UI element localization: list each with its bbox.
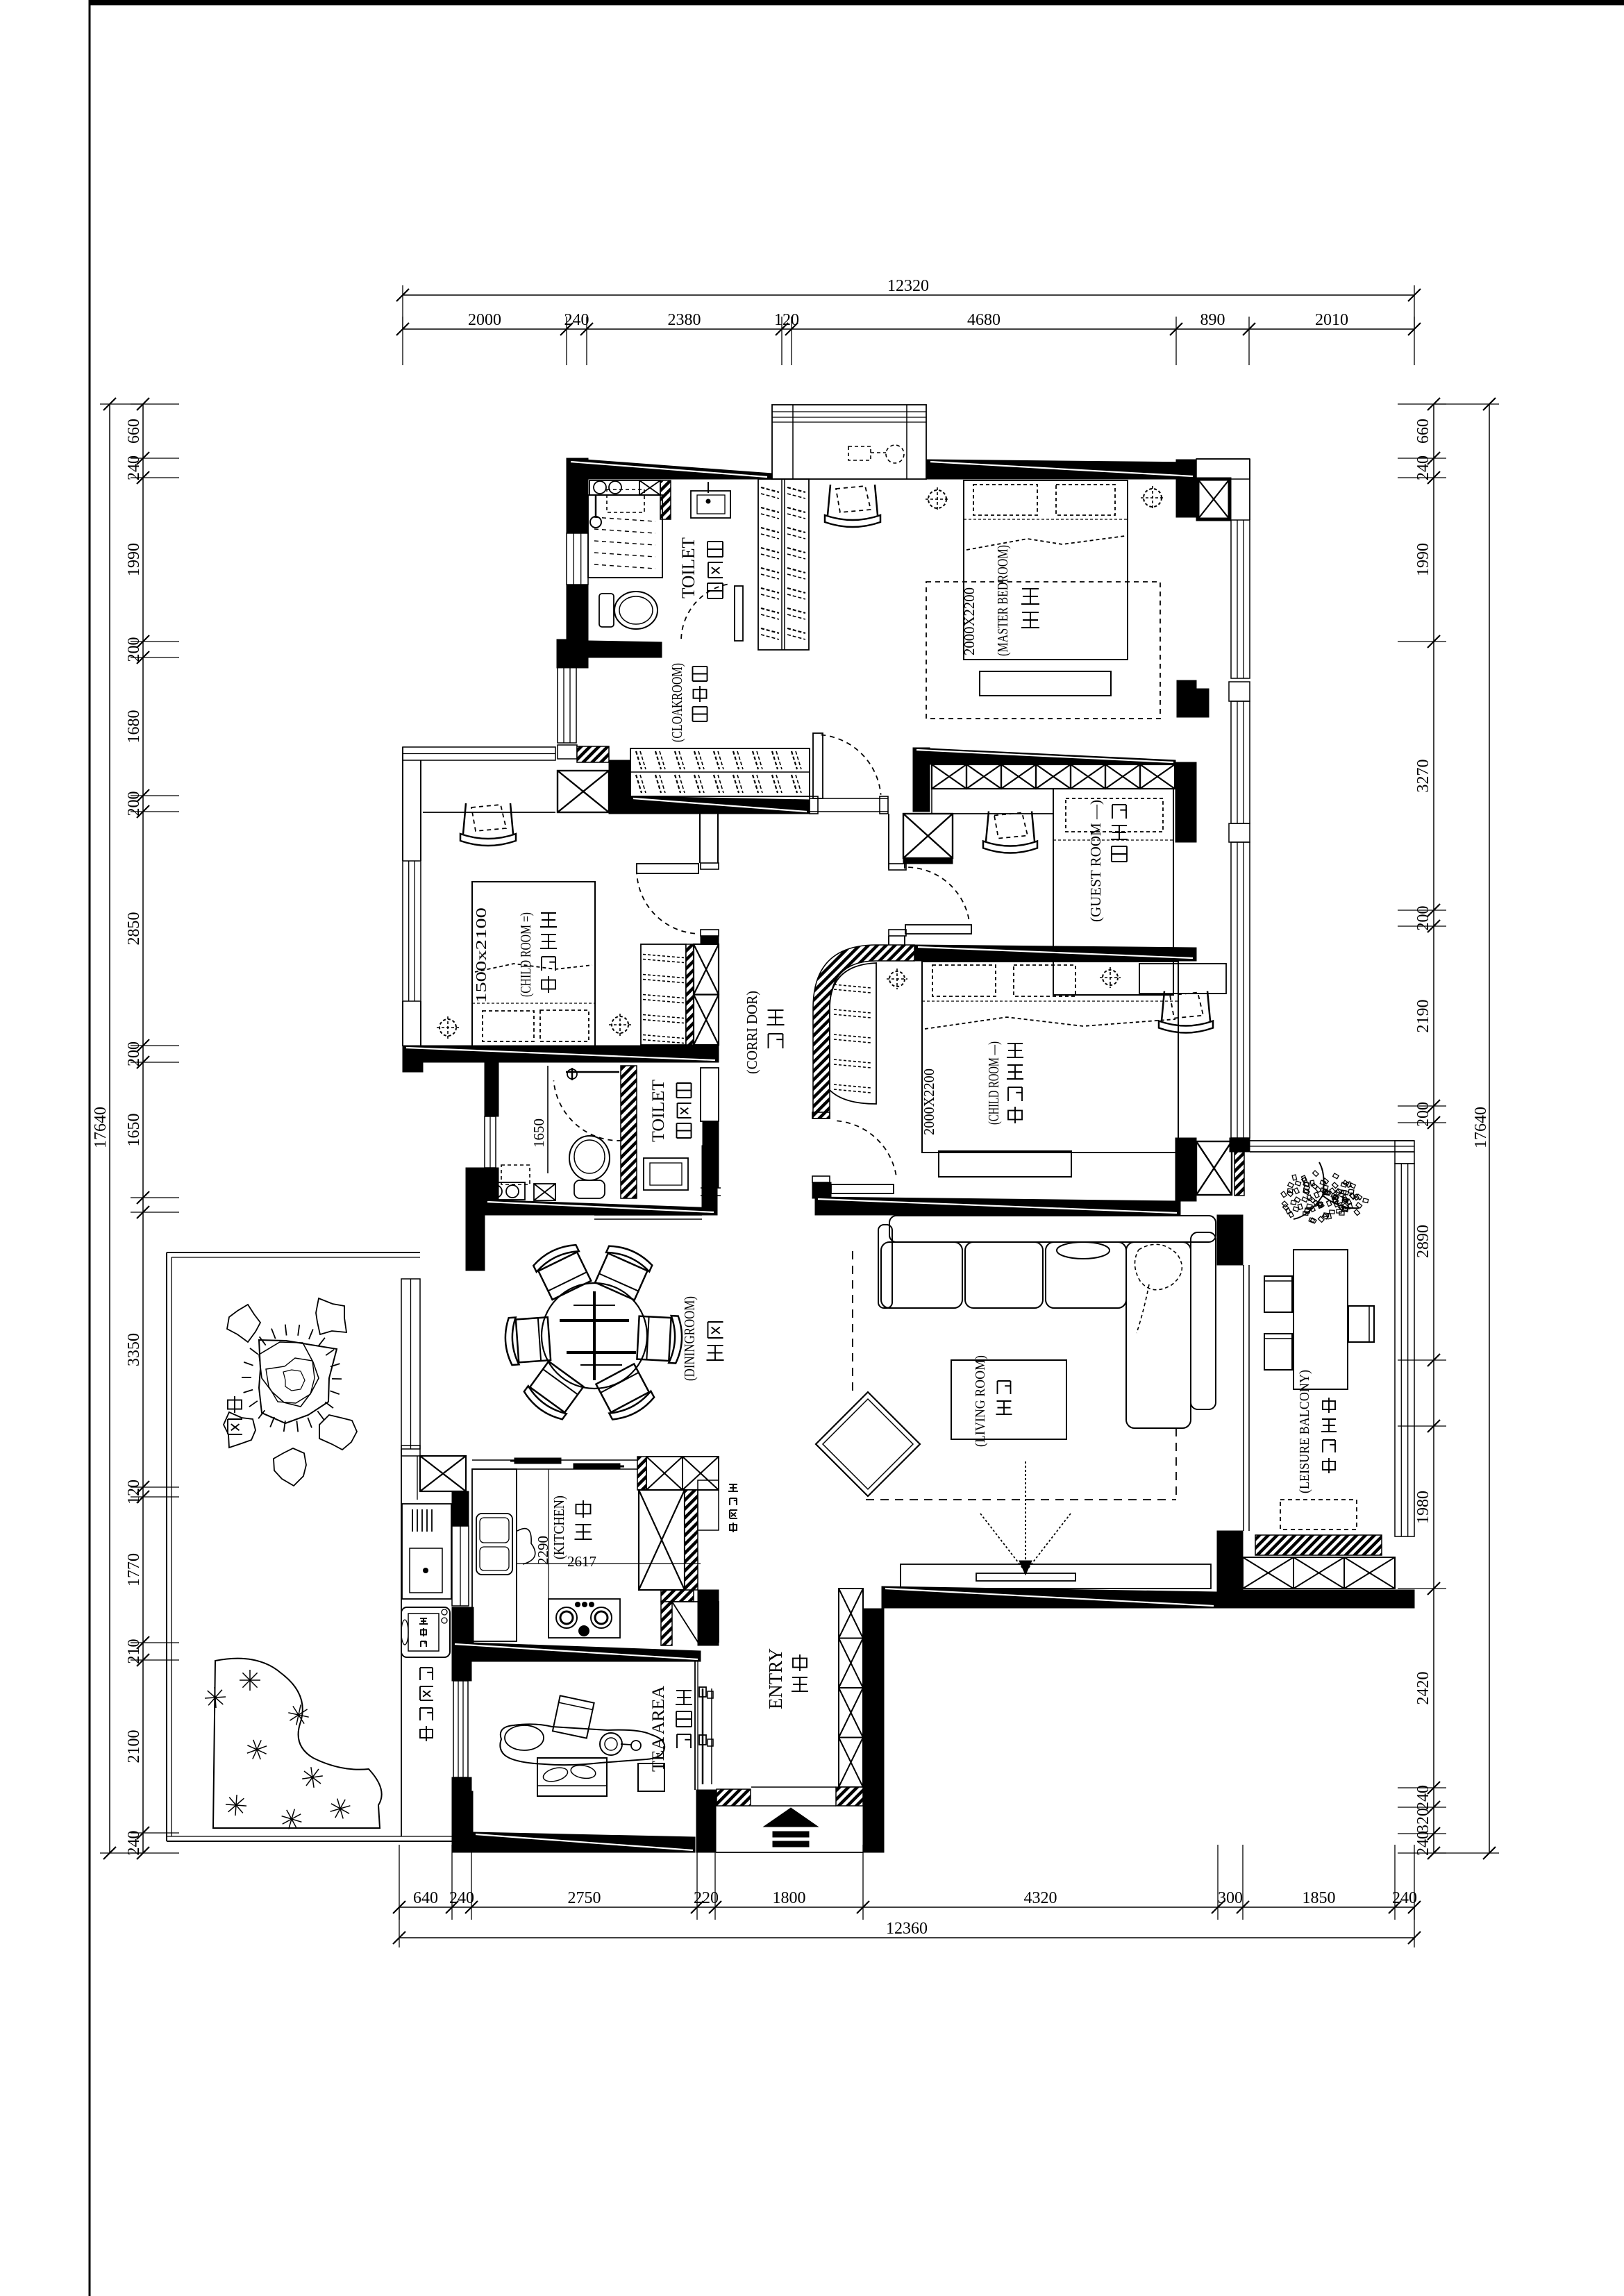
- svg-text:300: 300: [1218, 1889, 1243, 1907]
- svg-text:2617: 2617: [567, 1553, 596, 1570]
- svg-text:2000: 2000: [468, 311, 501, 329]
- svg-text:TOILET: TOILET: [649, 1080, 668, 1142]
- svg-text:3350: 3350: [125, 1333, 143, 1366]
- svg-text:ENTRY: ENTRY: [765, 1648, 786, 1709]
- svg-text:120: 120: [774, 311, 799, 329]
- svg-text:17640: 17640: [92, 1107, 110, 1148]
- svg-text:(CHILD ROOM —): (CHILD ROOM —): [985, 1041, 1002, 1125]
- svg-text:1680: 1680: [125, 710, 143, 744]
- svg-text:1650: 1650: [530, 1118, 547, 1148]
- svg-text:640: 640: [413, 1889, 438, 1907]
- svg-text:240: 240: [564, 311, 589, 329]
- svg-text:2000X2200: 2000X2200: [921, 1069, 937, 1135]
- svg-text:320: 320: [1414, 1808, 1432, 1833]
- svg-text:1770: 1770: [125, 1553, 143, 1586]
- svg-text:220: 220: [694, 1889, 719, 1907]
- svg-text:(KITCHEN): (KITCHEN): [551, 1495, 567, 1559]
- svg-text:(CORRI DOR): (CORRI DOR): [744, 991, 760, 1074]
- svg-text:1990: 1990: [1414, 543, 1432, 576]
- svg-text:1850: 1850: [1303, 1889, 1336, 1907]
- svg-text:200: 200: [1414, 906, 1432, 931]
- svg-text:200: 200: [125, 1041, 143, 1066]
- svg-text:210: 210: [125, 1639, 143, 1664]
- svg-text:2750: 2750: [568, 1889, 601, 1907]
- svg-text:(CLOAKROOM): (CLOAKROOM): [669, 663, 685, 742]
- svg-text:890: 890: [1200, 311, 1225, 329]
- svg-text:1650: 1650: [125, 1114, 143, 1147]
- svg-text:(CHILD ROOM =): (CHILD ROOM =): [517, 912, 534, 997]
- svg-text:2850: 2850: [125, 912, 143, 946]
- svg-text:12360: 12360: [886, 1920, 928, 1938]
- svg-text:240: 240: [1414, 1831, 1432, 1856]
- svg-text:(LEISURE BALCONY): (LEISURE BALCONY): [1297, 1370, 1312, 1493]
- svg-text:240: 240: [1414, 455, 1432, 480]
- svg-text:TOILET: TOILET: [678, 537, 698, 598]
- svg-text:3270: 3270: [1414, 760, 1432, 793]
- svg-text:17640: 17640: [1472, 1107, 1490, 1148]
- svg-text:2420: 2420: [1414, 1672, 1432, 1705]
- svg-text:240: 240: [1414, 1785, 1432, 1810]
- svg-text:TEA AREA: TEA AREA: [649, 1686, 668, 1772]
- svg-text:(LIVING ROOM): (LIVING ROOM): [973, 1355, 988, 1447]
- svg-text:1990: 1990: [125, 543, 143, 576]
- svg-text:(GUEST ROOM —): (GUEST ROOM —): [1087, 800, 1104, 922]
- svg-text:660: 660: [1414, 419, 1432, 444]
- svg-text:2010: 2010: [1315, 311, 1348, 329]
- svg-text:12320: 12320: [887, 277, 929, 295]
- svg-text:120: 120: [125, 1480, 143, 1505]
- svg-text:240: 240: [1392, 1889, 1417, 1907]
- svg-text:2000X2200: 2000X2200: [961, 587, 978, 655]
- svg-text:2890: 2890: [1414, 1225, 1432, 1258]
- svg-text:200: 200: [125, 791, 143, 816]
- svg-text:660: 660: [125, 419, 143, 444]
- svg-text:2380: 2380: [668, 311, 701, 329]
- svg-text:1500x2100: 1500x2100: [473, 907, 489, 1003]
- svg-text:200: 200: [1414, 1102, 1432, 1127]
- svg-text:240: 240: [125, 1831, 143, 1856]
- svg-text:4680: 4680: [967, 311, 1001, 329]
- svg-text:1980: 1980: [1414, 1491, 1432, 1524]
- svg-text:2190: 2190: [1414, 1000, 1432, 1033]
- svg-text:240: 240: [449, 1889, 474, 1907]
- svg-text:240: 240: [125, 455, 143, 480]
- svg-text:1800: 1800: [773, 1889, 806, 1907]
- svg-text:(DININGROOM): (DININGROOM): [681, 1296, 698, 1381]
- svg-text:4320: 4320: [1024, 1889, 1057, 1907]
- svg-text:(MASTER BEDROOM): (MASTER BEDROOM): [994, 545, 1011, 656]
- svg-text:2100: 2100: [125, 1730, 143, 1763]
- svg-text:200: 200: [125, 637, 143, 662]
